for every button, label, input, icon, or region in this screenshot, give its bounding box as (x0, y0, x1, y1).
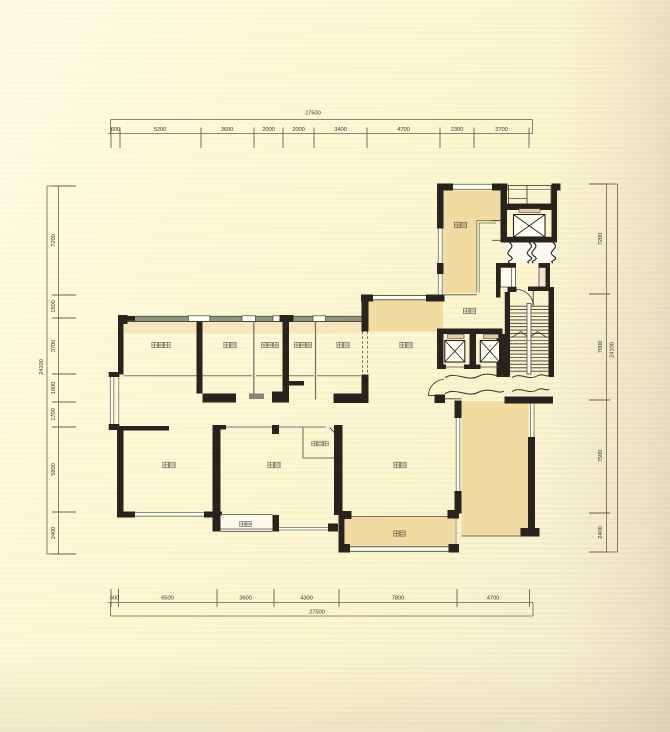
svg-text:7000: 7000 (598, 341, 604, 354)
svg-text:600: 600 (111, 127, 120, 133)
svg-text:3700: 3700 (51, 340, 57, 353)
svg-text:2300: 2300 (451, 127, 464, 133)
svg-text:7500: 7500 (598, 450, 604, 463)
svg-text:24100: 24100 (610, 342, 616, 358)
svg-text:3700: 3700 (495, 127, 508, 133)
svg-text:4700: 4700 (397, 127, 410, 133)
svg-text:2000: 2000 (292, 127, 305, 133)
svg-text:3600: 3600 (239, 596, 252, 602)
svg-text:2400: 2400 (51, 527, 57, 540)
svg-text:5800: 5800 (51, 463, 57, 476)
svg-text:3600: 3600 (221, 127, 234, 133)
svg-text:2000: 2000 (262, 127, 275, 133)
svg-text:6500: 6500 (161, 596, 174, 602)
svg-text:27500: 27500 (309, 610, 325, 616)
svg-text:4300: 4300 (300, 596, 313, 602)
svg-text:7200: 7200 (598, 233, 604, 246)
svg-text:5200: 5200 (154, 127, 167, 133)
svg-text:600: 600 (110, 596, 119, 602)
svg-text:7200: 7200 (51, 234, 57, 247)
svg-text:27500: 27500 (305, 111, 321, 117)
svg-text:24100: 24100 (39, 359, 45, 375)
svg-text:2400: 2400 (598, 526, 604, 539)
svg-text:1500: 1500 (51, 300, 57, 313)
svg-text:3400: 3400 (334, 127, 347, 133)
svg-text:1800: 1800 (51, 382, 57, 395)
svg-text:7800: 7800 (392, 596, 405, 602)
svg-text:4700: 4700 (487, 596, 500, 602)
svg-text:1700: 1700 (51, 408, 57, 421)
